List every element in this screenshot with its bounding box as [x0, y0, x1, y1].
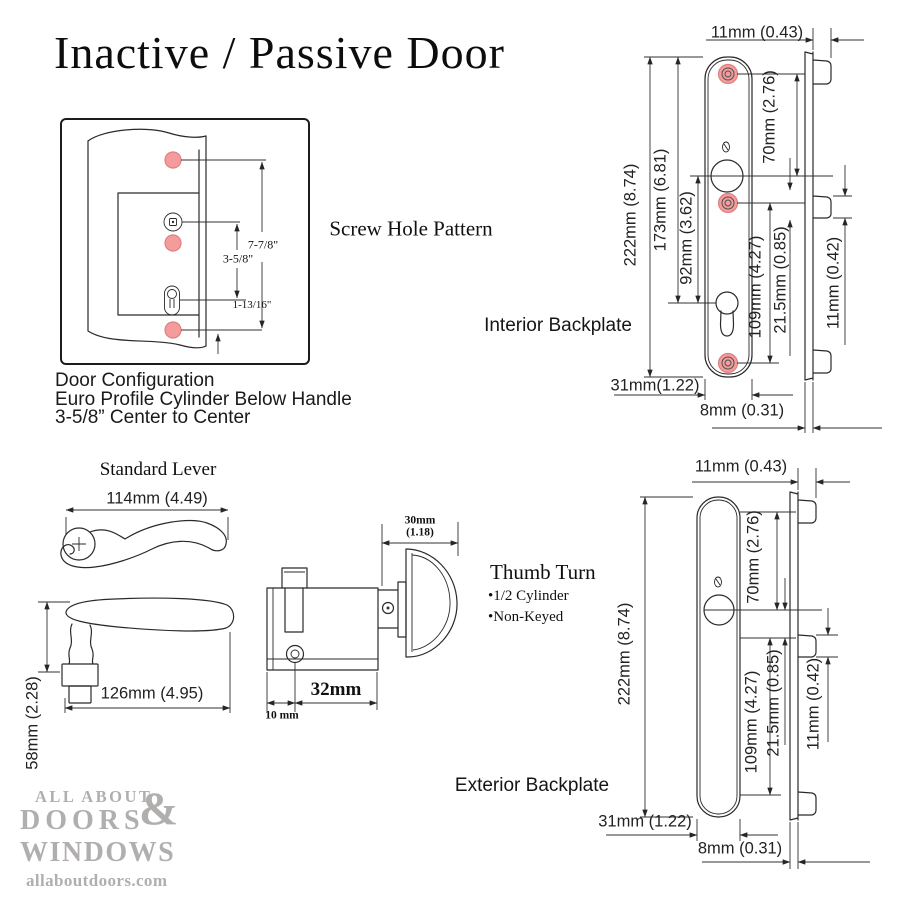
- dim-cylinder-length: 32mm: [311, 679, 362, 701]
- exterior-backplate-drawing: [606, 468, 870, 869]
- dim-int-lug: 21.5mm (0.85): [772, 226, 791, 333]
- dim-int-handle-to-cylinder: 92mm (3.62): [678, 191, 697, 285]
- dim-int-lug-depth: 11mm (0.42): [825, 237, 844, 329]
- company-logo: ALL ABOUT & DOORS WINDOWS allaboutdoors.…: [20, 789, 210, 889]
- dim-lever-height: 58mm (2.28): [24, 676, 43, 770]
- dim-knob-width: 30mm (1.18): [405, 516, 436, 539]
- dim-box-overall: 7-7/8": [248, 238, 278, 253]
- caption-line-3: 3-5/8” Center to Center: [55, 409, 352, 428]
- diagram-page: Inactive / Passive Door Screw Hole Patte…: [0, 0, 900, 900]
- dim-ext-plate-width: 31mm (1.22): [598, 813, 692, 832]
- thumb-turn-bullet-2: •Non-Keyed: [488, 609, 563, 626]
- dim-ext-lug: 21.5mm (0.85): [765, 649, 784, 756]
- exterior-backplate-heading: Exterior Backplate: [455, 775, 609, 797]
- dim-ext-lug-depth: 11mm (0.42): [805, 658, 824, 750]
- dim-ext-plate-depth: 8mm (0.31): [698, 840, 782, 859]
- lever-top-view-drawing: [61, 510, 228, 568]
- dim-int-height: 222mm (8.74): [622, 164, 641, 267]
- door-configuration-caption: Door Configuration Euro Profile Cylinder…: [55, 372, 352, 428]
- dim-cylinder-offset: 10 mm: [265, 710, 299, 722]
- standard-lever-heading: Standard Lever: [100, 459, 217, 481]
- dim-int-screw-to-screw: 109mm (4.27): [747, 236, 766, 339]
- screw-hole-pattern-heading: Screw Hole Pattern: [329, 217, 492, 242]
- dim-ext-top-width: 11mm (0.43): [695, 458, 787, 477]
- dim-int-plate-width: 31mm(1.22): [611, 377, 700, 396]
- dim-knob-width-line2: (1.18): [405, 527, 436, 539]
- dim-box-cylinder-to-screw: 1-13/16": [233, 299, 272, 311]
- dim-lever-length-top: 114mm (4.49): [106, 490, 207, 509]
- caption-line-1: Door Configuration: [55, 372, 352, 391]
- dim-int-plate-depth: 8mm (0.31): [700, 402, 784, 421]
- dim-int-screw-to-handle: 70mm (2.76): [761, 70, 780, 164]
- dim-lever-length-side: 126mm (4.95): [101, 685, 204, 704]
- dim-knob-width-line1: 30mm: [405, 516, 436, 528]
- logo-ampersand: &: [139, 786, 178, 833]
- interior-backplate-heading: Interior Backplate: [484, 315, 632, 337]
- thumb-turn-bullet-1: •1/2 Cylinder: [488, 588, 569, 605]
- dim-ext-screw-to-handle: 70mm (2.76): [745, 510, 764, 604]
- dim-int-top-width: 11mm (0.43): [711, 24, 803, 43]
- cylinder-thumb-turn-drawing: [267, 522, 458, 712]
- logo-website: allaboutdoors.com: [20, 872, 210, 889]
- thumb-turn-heading: Thumb Turn: [490, 560, 596, 585]
- dim-box-handle-to-cylinder: 3-5/8": [223, 252, 253, 267]
- dim-int-top-to-cylinder: 173mm (6.81): [652, 149, 671, 252]
- dim-ext-height: 222mm (8.74): [616, 603, 635, 706]
- dim-ext-screw-to-screw: 109mm (4.27): [743, 671, 762, 774]
- logo-line-doors: DOORS: [20, 807, 210, 835]
- logo-line-all-about: ALL ABOUT: [20, 789, 210, 806]
- logo-line-windows: WINDOWS: [20, 839, 210, 867]
- page-title: Inactive / Passive Door: [54, 26, 505, 79]
